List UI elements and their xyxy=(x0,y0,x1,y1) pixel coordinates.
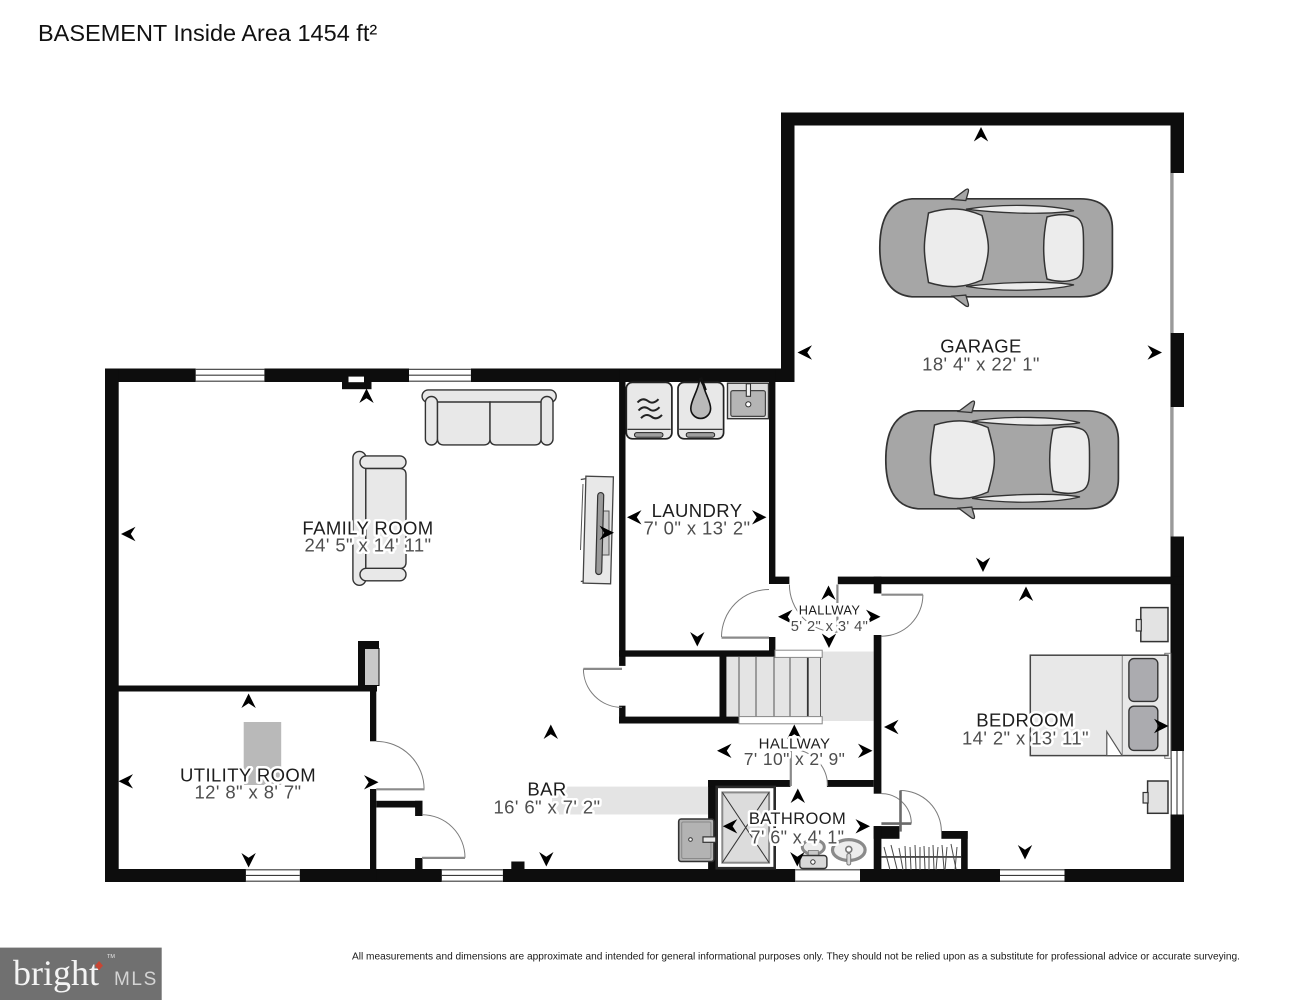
svg-text:HALLWAY: HALLWAY xyxy=(799,603,861,618)
svg-text:TM: TM xyxy=(107,954,115,960)
svg-text:16' 6" x 7' 2": 16' 6" x 7' 2" xyxy=(493,797,600,818)
svg-text:bright: bright xyxy=(13,953,99,993)
svg-text:12' 8" x 8' 7": 12' 8" x 8' 7" xyxy=(194,782,301,803)
svg-text:5' 2" x 3' 4": 5' 2" x 3' 4" xyxy=(791,619,869,635)
svg-text:BATHROOM: BATHROOM xyxy=(749,810,846,828)
svg-text:24' 5" x 14' 11": 24' 5" x 14' 11" xyxy=(304,535,431,556)
svg-text:18' 4" x 22' 1": 18' 4" x 22' 1" xyxy=(922,354,1040,375)
svg-text:7' 6" x 4' 1": 7' 6" x 4' 1" xyxy=(751,828,845,848)
svg-text:All measurements and dimension: All measurements and dimensions are appr… xyxy=(352,952,1240,963)
svg-text:14' 2" x 13' 11": 14' 2" x 13' 11" xyxy=(962,728,1089,749)
svg-text:BASEMENT Inside Area 1454 ft²: BASEMENT Inside Area 1454 ft² xyxy=(38,20,377,46)
svg-text:7' 10" x 2' 9": 7' 10" x 2' 9" xyxy=(744,749,846,769)
svg-text:7' 0" x 13' 2": 7' 0" x 13' 2" xyxy=(643,518,750,539)
svg-text:MLS: MLS xyxy=(114,969,158,990)
